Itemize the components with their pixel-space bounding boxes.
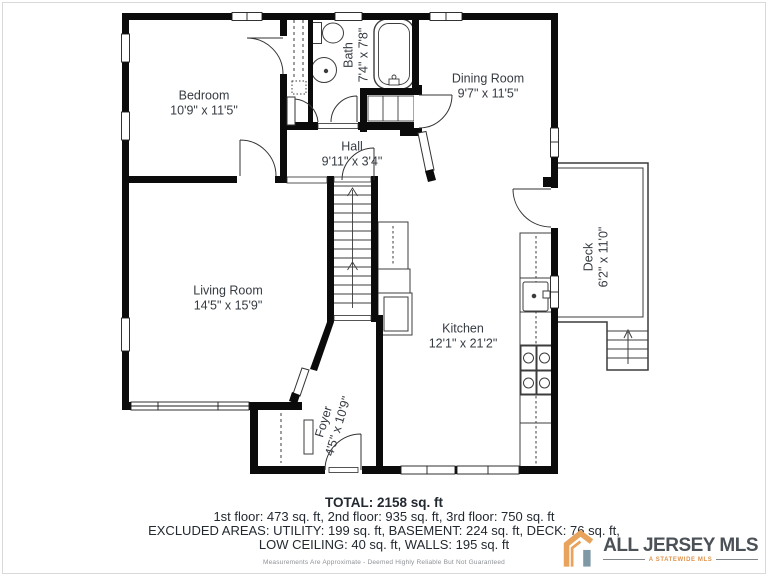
bath-sink-icon (310, 58, 337, 83)
bath-door-icon (331, 96, 357, 122)
floor-plan-drawing (0, 0, 768, 576)
room-label-deck: Deck 6'2" x 11'0" (581, 227, 611, 288)
room-name: Deck (581, 227, 596, 288)
logo-rule-left (603, 559, 645, 560)
room-dims: 9'7" x 11'5" (452, 86, 524, 101)
room-dims: 14'5" x 15'9" (193, 298, 262, 313)
logo-tagline: A STATEWIDE MLS (649, 557, 713, 563)
room-label-dining: Dining Room 9'7" x 11'5" (452, 71, 524, 101)
room-name: Hall (322, 139, 383, 154)
toilet-icon (311, 23, 344, 44)
floor-areas: 1st floor: 473 sq. ft, 2nd floor: 935 sq… (0, 510, 768, 524)
room-label-bedroom: Bedroom 10'9" x 11'5" (170, 88, 238, 118)
room-dims: 7'4" x 7'8" (356, 28, 371, 83)
room-label-bath: Bath 7'4" x 7'8" (341, 28, 371, 83)
floor-plan-page: Bedroom 10'9" x 11'5" Bath 7'4" x 7'8" D… (0, 0, 768, 576)
stove-icon (520, 345, 552, 395)
room-label-living: Living Room 14'5" x 15'9" (193, 283, 262, 313)
deck-door-icon (513, 189, 551, 227)
kitchen-swing-door-icon (418, 132, 436, 183)
kitchen-sink-icon (523, 282, 550, 311)
logo-rule-right (716, 559, 758, 560)
bathtub-icon (374, 19, 414, 89)
logo-name: ALL JERSEY MLS (603, 536, 758, 556)
room-dims: 10'9" x 11'5" (170, 103, 238, 118)
room-label-hall: Hall 9'11" x 3'4" (322, 139, 383, 169)
room-label-kitchen: Kitchen 12'1" x 21'2" (429, 321, 498, 351)
room-name: Bedroom (170, 88, 238, 103)
staircase-icon (334, 186, 371, 308)
bedroom-closet-icon (292, 20, 306, 94)
room-dims: 12'1" x 21'2" (429, 336, 498, 351)
room-name: Kitchen (429, 321, 498, 336)
room-dims: 9'11" x 3'4" (322, 154, 383, 169)
room-name: Living Room (193, 283, 262, 298)
foyer-closet-icon (281, 413, 313, 463)
hall-closet-door-icon (287, 97, 318, 125)
linen-closet-icon (368, 96, 414, 121)
kitchen-island-icon (378, 222, 412, 335)
total-area: TOTAL: 2158 sq. ft (0, 496, 768, 510)
mls-logo: ALL JERSEY MLS A STATEWIDE MLS (561, 529, 758, 569)
deck-stairs-icon (607, 330, 648, 364)
room-name: Dining Room (452, 71, 524, 86)
room-dims: 6'2" x 11'0" (596, 227, 611, 288)
house-icon (561, 529, 598, 569)
bedroom-door-icon (240, 140, 276, 176)
room-name: Bath (341, 28, 356, 83)
foyer-swing-door-icon (289, 368, 309, 404)
dining-door-icon (419, 95, 452, 128)
bedroom-closet-door-icon (247, 38, 283, 74)
